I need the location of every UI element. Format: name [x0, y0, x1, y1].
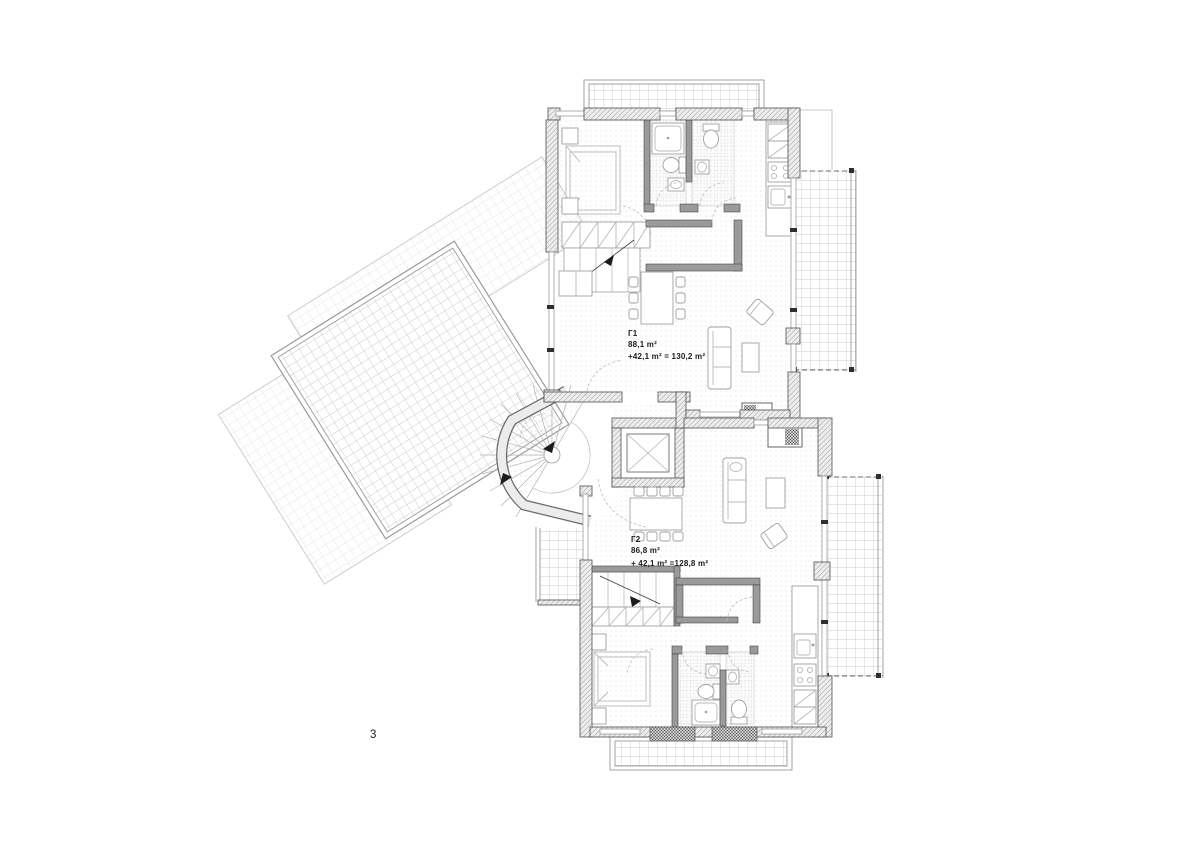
apartment-2-area: 86,8 m² — [631, 546, 660, 555]
kitchen-sink-icon — [794, 634, 816, 658]
terrace-right-upper — [792, 168, 856, 372]
elevator — [612, 418, 684, 487]
terrace-right-lower — [824, 474, 883, 678]
apartment-2-id: Г2 — [631, 535, 641, 544]
nightstand-icon — [562, 128, 578, 144]
sofa-icon — [723, 458, 746, 523]
wardrobe-icon — [592, 607, 674, 626]
dining-table-icon — [630, 487, 683, 541]
shower-icon — [692, 700, 720, 725]
apartment-1-area: 88,1 m² — [628, 340, 657, 349]
apartment-1-total: +42,1 m² = 130,2 m² — [628, 352, 705, 361]
kitchen-sink-icon — [768, 186, 792, 208]
fireplace-icon — [768, 426, 802, 447]
sofa-icon — [708, 327, 731, 389]
coffee-table-icon — [766, 478, 785, 508]
toilet-icon — [663, 157, 686, 173]
nightstand-icon — [562, 198, 578, 214]
toilet-icon — [698, 684, 720, 699]
stairs-icon — [592, 572, 674, 607]
apartment-1-id: Г1 — [628, 329, 638, 338]
door-threshold — [712, 727, 757, 741]
floor-plan: Г1 88,1 m² +42,1 m² = 130,2 m² Г2 86,8 m… — [0, 0, 1191, 842]
apartment-2-total: + 42,1 m² =128,8 m² — [631, 559, 708, 568]
toilet-icon — [731, 700, 747, 724]
nightstand-icon — [590, 708, 606, 724]
terrace-bottom — [610, 737, 792, 770]
wardrobe-icon — [562, 222, 650, 248]
shower-icon — [652, 123, 684, 154]
stove-icon — [794, 664, 816, 686]
roof-edge-line — [797, 110, 832, 170]
toilet-icon — [703, 124, 719, 148]
closet-icon — [559, 271, 592, 296]
kitchen-counter — [792, 586, 818, 728]
sheet-number: 3 — [370, 729, 376, 741]
coffee-table-icon — [742, 343, 759, 372]
nightstand-icon — [590, 634, 606, 650]
dining-table-icon — [629, 272, 685, 324]
door-threshold — [650, 727, 695, 741]
